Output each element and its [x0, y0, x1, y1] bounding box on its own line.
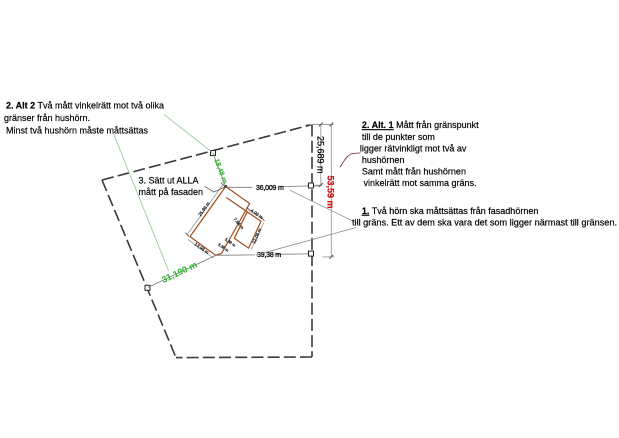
svg-text:2. Alt. 1 Mått från gränspunkt: 2. Alt. 1 Mått från gränspunkt [362, 120, 479, 130]
svg-text:mått på fasaden: mått på fasaden [139, 187, 204, 197]
svg-text:1. Två hörn ska måttsättas frå: 1. Två hörn ska måttsättas från fasadhör… [362, 206, 538, 216]
svg-text:3. Sätt ut ALLA: 3. Sätt ut ALLA [139, 176, 199, 186]
svg-text:vinkelrätt mot samma gräns.: vinkelrätt mot samma gräns. [364, 178, 477, 188]
svg-text:18,48 m: 18,48 m [212, 158, 228, 184]
svg-text:39,38 m: 39,38 m [257, 252, 281, 259]
svg-text:25,98 m: 25,98 m [197, 201, 211, 217]
svg-text:Minst två hushörn måste måttsä: Minst två hushörn måste måttsättas [6, 126, 149, 136]
svg-text:13,98 m: 13,98 m [194, 241, 210, 255]
svg-text:hushörnen: hushörnen [362, 155, 405, 165]
svg-text:ligger rätvinkligt mot två av: ligger rätvinkligt mot två av [360, 143, 467, 153]
svg-text:53,59 m: 53,59 m [326, 176, 336, 209]
svg-text:12,06 m: 12,06 m [251, 227, 263, 244]
svg-text:2. Alt 2 Två mått vinkelrätt m: 2. Alt 2 Två mått vinkelrätt mot två oli… [6, 101, 164, 111]
svg-text:36,009 m: 36,009 m [256, 185, 284, 192]
svg-text:till gräns. Ett av dem ska var: till gräns. Ett av dem ska vara det som … [352, 217, 617, 227]
svg-text:till de punkter som: till de punkter som [362, 132, 435, 142]
svg-text:Samt mått från hushörnen: Samt mått från hushörnen [362, 167, 466, 177]
svg-text:gränser från hushörn.: gränser från hushörn. [4, 113, 90, 123]
svg-text:25,689 m: 25,689 m [315, 136, 325, 174]
